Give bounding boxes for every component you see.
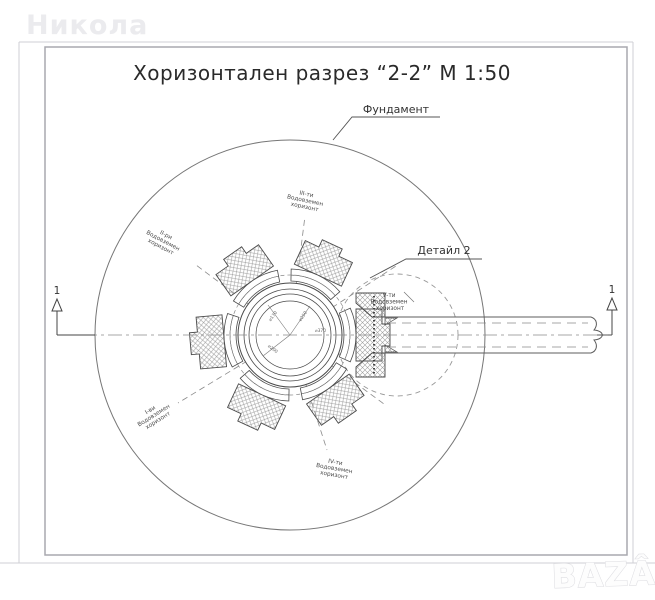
- detail-leader-line: [370, 259, 482, 278]
- drawing-title: Хоризонтален разрез “2-2” М 1:50: [133, 61, 511, 85]
- foundation-leader-line: [333, 117, 440, 140]
- horizon-label-4: IV-ти Водовземен хоризонт: [314, 457, 355, 482]
- section-marker-left: 1: [52, 285, 95, 335]
- section-arrow-up-icon: [607, 298, 617, 310]
- section-marker-right: 1: [597, 284, 617, 335]
- dim-label-4: ⌀370: [315, 328, 326, 334]
- technical-drawing: Никола Хоризонтален разрез “2-2” М 1:50 …: [0, 0, 655, 600]
- horizon-label-2: II-ри Водовземен хоризонт: [142, 224, 185, 259]
- horizon-5-line2: Водовземен: [371, 299, 408, 305]
- section-marker-left-number: 1: [54, 285, 61, 297]
- horizon-label-1: I-ви Водовземен хоризонт: [133, 397, 176, 433]
- seller-watermark: Никола: [26, 10, 148, 41]
- horizon-5-line3: хоризонт: [376, 306, 405, 312]
- marketplace-logo-watermark: BAZÂR: [551, 551, 655, 596]
- horizon-5-ordinal: V-ти: [383, 293, 396, 299]
- section-arrow-up-icon: [52, 299, 62, 311]
- detail-label: Детайл 2: [417, 244, 470, 257]
- foundation-label: Фундамент: [363, 103, 430, 116]
- horizon-label-3: III-ти Водовземен хоризонт: [285, 188, 327, 214]
- section-marker-right-number: 1: [609, 284, 616, 296]
